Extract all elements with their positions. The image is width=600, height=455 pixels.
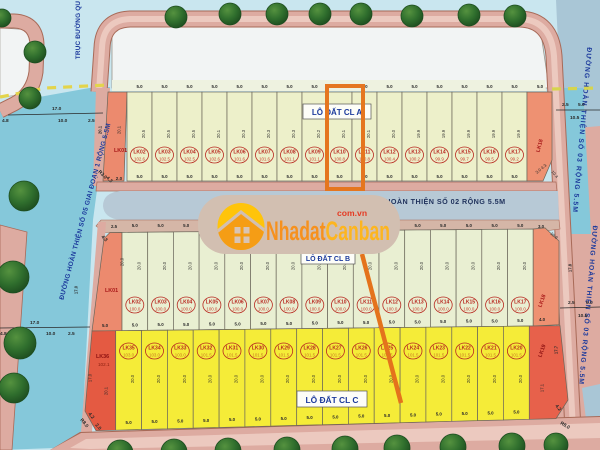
- svg-text:20.0: 20.0: [368, 261, 373, 270]
- svg-text:102.6: 102.6: [209, 157, 221, 162]
- svg-text:5.0: 5.0: [337, 320, 344, 325]
- svg-text:5.0: 5.0: [136, 84, 143, 89]
- svg-text:20.5: 20.5: [191, 129, 196, 138]
- svg-text:5.0: 5.0: [517, 223, 524, 228]
- svg-text:NhadatCanban: NhadatCanban: [266, 216, 390, 246]
- svg-text:5.0: 5.0: [436, 174, 443, 179]
- svg-text:20.0: 20.0: [440, 374, 445, 383]
- svg-text:100.0: 100.0: [335, 307, 347, 312]
- svg-text:100.0: 100.0: [309, 307, 321, 312]
- svg-text:LK12: LK12: [386, 300, 398, 306]
- svg-text:LK16: LK16: [488, 300, 500, 306]
- svg-text:5.0: 5.0: [511, 84, 518, 89]
- svg-text:20.0: 20.0: [208, 374, 213, 383]
- svg-text:LK21: LK21: [484, 346, 496, 352]
- svg-text:103.0: 103.0: [149, 353, 161, 358]
- svg-text:5.0: 5.0: [132, 223, 139, 228]
- svg-text:5.0: 5.0: [161, 174, 168, 179]
- svg-text:LK05: LK05: [206, 300, 218, 306]
- svg-text:20.0: 20.0: [291, 261, 296, 270]
- svg-text:17.0: 17.0: [52, 106, 62, 112]
- svg-text:10.0: 10.0: [46, 331, 56, 337]
- svg-text:5.0: 5.0: [411, 174, 418, 179]
- svg-text:101.1: 101.1: [284, 157, 296, 162]
- svg-text:10.5: 10.5: [578, 313, 588, 319]
- svg-text:103.0: 103.0: [175, 353, 187, 358]
- svg-text:LK30: LK30: [252, 346, 264, 352]
- svg-text:LK17: LK17: [508, 150, 520, 156]
- svg-text:5.0: 5.0: [136, 174, 143, 179]
- svg-text:5.0: 5.0: [389, 320, 396, 325]
- svg-text:101.5: 101.5: [201, 353, 213, 358]
- svg-text:LK14: LK14: [437, 300, 449, 306]
- svg-text:101.1: 101.1: [309, 157, 321, 162]
- svg-text:20.0: 20.0: [136, 261, 141, 270]
- svg-text:17.8: 17.8: [568, 263, 573, 272]
- svg-text:LK09: LK09: [309, 300, 321, 306]
- svg-text:LK24: LK24: [407, 346, 419, 352]
- svg-text:5.0: 5.0: [578, 102, 585, 108]
- svg-text:5.0: 5.0: [492, 223, 499, 228]
- svg-text:20.1: 20.1: [117, 125, 122, 134]
- svg-text:101.6: 101.6: [234, 157, 246, 162]
- svg-text:5.0: 5.0: [312, 321, 319, 326]
- svg-text:20.0: 20.0: [337, 374, 342, 383]
- svg-text:5.0: 5.0: [203, 418, 210, 423]
- svg-text:100.0: 100.0: [206, 307, 218, 312]
- svg-text:20.0: 20.0: [259, 374, 264, 383]
- svg-text:20.0: 20.0: [393, 261, 398, 270]
- svg-text:LK20: LK20: [510, 346, 522, 352]
- svg-text:100.0: 100.0: [412, 307, 424, 312]
- svg-text:5.0: 5.0: [102, 323, 109, 328]
- svg-text:100.4: 100.4: [384, 157, 396, 162]
- svg-text:LK31: LK31: [226, 346, 238, 352]
- svg-text:LK28: LK28: [303, 346, 315, 352]
- svg-text:20.3: 20.3: [291, 129, 296, 138]
- svg-text:20.0: 20.0: [265, 261, 270, 270]
- svg-text:20.5: 20.5: [166, 129, 171, 138]
- svg-text:10.5: 10.5: [570, 115, 580, 121]
- svg-text:LK17: LK17: [514, 300, 526, 306]
- svg-text:5.0: 5.0: [517, 318, 524, 323]
- svg-text:20.5: 20.5: [141, 129, 146, 138]
- svg-text:100.0: 100.0: [361, 307, 373, 312]
- svg-text:5.0: 5.0: [186, 174, 193, 179]
- svg-text:20.0: 20.0: [466, 374, 471, 383]
- svg-text:5.0: 5.0: [537, 84, 544, 89]
- svg-text:10.0: 10.0: [58, 118, 68, 124]
- svg-text:LK15: LK15: [458, 150, 470, 156]
- svg-text:5.0: 5.0: [586, 300, 593, 306]
- svg-text:103.0: 103.0: [123, 353, 135, 358]
- svg-text:20.0: 20.0: [311, 374, 316, 383]
- svg-text:5.0: 5.0: [492, 318, 499, 323]
- svg-text:5.0: 5.0: [363, 320, 370, 325]
- svg-text:LK27: LK27: [329, 346, 341, 352]
- svg-text:101.5: 101.5: [459, 353, 471, 358]
- svg-text:5.0: 5.0: [158, 322, 165, 327]
- svg-text:5.0: 5.0: [466, 223, 473, 228]
- svg-text:5.0: 5.0: [126, 420, 133, 425]
- svg-text:5.0: 5.0: [209, 322, 216, 327]
- svg-text:20.0: 20.0: [391, 129, 396, 138]
- svg-text:5.0: 5.0: [132, 323, 139, 328]
- svg-text:20.0: 20.0: [162, 261, 167, 270]
- svg-text:5.0: 5.0: [487, 410, 494, 415]
- svg-text:5.0: 5.0: [486, 174, 493, 179]
- svg-text:LK08: LK08: [283, 150, 295, 156]
- svg-text:LK22: LK22: [459, 346, 471, 352]
- svg-text:17.0: 17.0: [30, 320, 40, 326]
- svg-text:20.0: 20.0: [518, 374, 523, 383]
- svg-text:LK07: LK07: [258, 150, 270, 156]
- svg-text:LK04: LK04: [183, 150, 195, 156]
- svg-text:20.1: 20.1: [341, 129, 346, 138]
- svg-text:5.0: 5.0: [281, 416, 288, 421]
- svg-text:5.0: 5.0: [158, 223, 165, 228]
- svg-text:20.0: 20.0: [522, 261, 527, 270]
- svg-text:101.5: 101.5: [356, 353, 368, 358]
- svg-text:100.2: 100.2: [409, 157, 421, 162]
- svg-text:5.0: 5.0: [260, 321, 267, 326]
- svg-text:LK06: LK06: [231, 300, 243, 306]
- svg-text:5.0: 5.0: [511, 174, 518, 179]
- svg-text:5.0: 5.0: [461, 174, 468, 179]
- svg-text:5.0: 5.0: [183, 223, 190, 228]
- svg-text:5.0: 5.0: [462, 411, 469, 416]
- svg-text:5.0: 5.0: [440, 223, 447, 228]
- svg-text:5.0: 5.0: [466, 319, 473, 324]
- svg-text:LK10: LK10: [333, 150, 345, 156]
- svg-text:20.1: 20.1: [366, 129, 371, 138]
- svg-text:19.9: 19.9: [416, 129, 421, 138]
- svg-text:17.0: 17.0: [88, 373, 93, 382]
- svg-text:5.0: 5.0: [236, 84, 243, 89]
- svg-text:20.2: 20.2: [316, 129, 321, 138]
- svg-text:4.0: 4.0: [539, 317, 546, 322]
- svg-text:5.0: 5.0: [386, 174, 393, 179]
- svg-text:5.0: 5.0: [513, 410, 520, 415]
- svg-text:LK29: LK29: [278, 346, 290, 352]
- svg-text:20.0: 20.0: [445, 261, 450, 270]
- svg-text:20.0: 20.0: [239, 261, 244, 270]
- svg-text:5.0: 5.0: [151, 419, 158, 424]
- svg-text:20.0: 20.0: [492, 374, 497, 383]
- svg-text:2.0: 2.0: [116, 176, 123, 181]
- svg-text:20.0: 20.0: [234, 374, 239, 383]
- svg-text:LK07: LK07: [257, 300, 269, 306]
- svg-text:LK12: LK12: [383, 150, 395, 156]
- svg-text:LK34: LK34: [148, 346, 160, 352]
- svg-text:5.0: 5.0: [461, 84, 468, 89]
- svg-text:100.0: 100.0: [463, 307, 475, 312]
- svg-text:LK14: LK14: [433, 150, 445, 156]
- svg-text:LK23: LK23: [433, 346, 445, 352]
- svg-text:101.5: 101.5: [511, 353, 523, 358]
- svg-text:5.0: 5.0: [286, 84, 293, 89]
- svg-text:5.0: 5.0: [255, 416, 262, 421]
- svg-text:5.0: 5.0: [415, 319, 422, 324]
- svg-text:5.0: 5.0: [183, 322, 190, 327]
- svg-text:LK01: LK01: [105, 288, 118, 294]
- svg-text:101.6: 101.6: [259, 157, 271, 162]
- svg-text:LK13: LK13: [408, 150, 420, 156]
- svg-text:LK06: LK06: [233, 150, 245, 156]
- svg-text:2.5: 2.5: [111, 224, 118, 229]
- svg-text:100.0: 100.0: [232, 307, 244, 312]
- svg-text:100.0: 100.0: [181, 307, 193, 312]
- svg-text:101.5: 101.5: [485, 353, 497, 358]
- svg-text:20.0: 20.0: [363, 374, 368, 383]
- svg-text:2.5: 2.5: [68, 331, 75, 337]
- svg-text:LK10: LK10: [334, 300, 346, 306]
- svg-text:100.0: 100.0: [515, 307, 527, 312]
- svg-text:20.0: 20.0: [120, 257, 125, 266]
- svg-text:100.8: 100.8: [334, 157, 346, 162]
- svg-text:LK02: LK02: [133, 150, 145, 156]
- svg-text:LK05: LK05: [208, 150, 220, 156]
- svg-text:LK15: LK15: [463, 300, 475, 306]
- svg-text:5.0: 5.0: [436, 84, 443, 89]
- svg-text:5.0: 5.0: [440, 319, 447, 324]
- svg-text:102.5: 102.5: [184, 157, 196, 162]
- svg-text:5.0: 5.0: [386, 84, 393, 89]
- svg-text:101.5: 101.5: [227, 353, 239, 358]
- svg-text:TRỤC ĐƯỜNG QU: TRỤC ĐƯỜNG QU: [73, 1, 82, 60]
- svg-text:101.5: 101.5: [433, 353, 445, 358]
- svg-text:LÔ ĐẤT CL C: LÔ ĐẤT CL C: [306, 394, 359, 405]
- svg-text:LK08: LK08: [283, 300, 295, 306]
- svg-text:LK33: LK33: [174, 346, 186, 352]
- svg-text:102.6: 102.6: [134, 157, 146, 162]
- svg-text:5.0: 5.0: [410, 412, 417, 417]
- svg-text:LK35: LK35: [122, 346, 134, 352]
- svg-text:LÔ ĐẤT CL A: LÔ ĐẤT CL A: [312, 107, 362, 117]
- svg-text:2.5: 2.5: [88, 118, 95, 124]
- svg-text:5.0: 5.0: [261, 84, 268, 89]
- svg-text:LK16: LK16: [483, 150, 495, 156]
- svg-text:5.0: 5.0: [236, 174, 243, 179]
- svg-text:20.0: 20.0: [156, 374, 161, 383]
- svg-text:5.0: 5.0: [235, 321, 242, 326]
- svg-text:100.0: 100.0: [129, 307, 141, 312]
- svg-text:20.0: 20.0: [419, 261, 424, 270]
- svg-text:LK11: LK11: [360, 300, 372, 306]
- svg-text:5.0: 5.0: [411, 84, 418, 89]
- svg-text:LK01: LK01: [114, 148, 127, 154]
- svg-text:5.0: 5.0: [186, 84, 193, 89]
- svg-text:99.5: 99.5: [485, 157, 494, 162]
- svg-text:5.0: 5.0: [161, 84, 168, 89]
- svg-text:5.0: 5.0: [211, 84, 218, 89]
- svg-text:101.5: 101.5: [330, 353, 342, 358]
- svg-text:4.8: 4.8: [2, 118, 9, 124]
- svg-text:101.5: 101.5: [304, 353, 316, 358]
- svg-text:19.9: 19.9: [441, 129, 446, 138]
- svg-text:20.1: 20.1: [216, 129, 221, 138]
- svg-text:101.5: 101.5: [278, 353, 290, 358]
- svg-text:2.5: 2.5: [568, 300, 575, 306]
- svg-text:17.0: 17.0: [74, 285, 79, 294]
- svg-text:20.0: 20.0: [188, 261, 193, 270]
- svg-text:19.9: 19.9: [491, 129, 496, 138]
- svg-text:20.1: 20.1: [98, 125, 103, 134]
- svg-text:5.0: 5.0: [286, 174, 293, 179]
- svg-text:5.0: 5.0: [211, 174, 218, 179]
- svg-text:20.0: 20.0: [415, 374, 420, 383]
- svg-text:19.9: 19.9: [516, 129, 521, 138]
- svg-text:5.0: 5.0: [311, 84, 318, 89]
- svg-text:5.0: 5.0: [229, 417, 236, 422]
- svg-text:100.0: 100.0: [284, 307, 296, 312]
- svg-text:100.0: 100.0: [386, 307, 398, 312]
- svg-text:100.0: 100.0: [155, 307, 167, 312]
- svg-text:17.7: 17.7: [554, 345, 559, 354]
- svg-text:5.0: 5.0: [358, 414, 365, 419]
- svg-text:17.1: 17.1: [540, 383, 545, 392]
- svg-text:5.0: 5.0: [486, 84, 493, 89]
- svg-text:5.0: 5.0: [332, 414, 339, 419]
- svg-text:LK02: LK02: [129, 300, 141, 306]
- svg-text:20.3: 20.3: [241, 129, 246, 138]
- svg-text:5.0: 5.0: [336, 174, 343, 179]
- svg-text:20.0: 20.0: [213, 261, 218, 270]
- svg-text:102.5: 102.5: [159, 157, 171, 162]
- svg-text:5.0: 5.0: [311, 174, 318, 179]
- svg-text:5.0: 5.0: [286, 321, 293, 326]
- svg-text:20.0: 20.0: [182, 374, 187, 383]
- svg-text:99.7: 99.7: [460, 157, 469, 162]
- svg-text:LK03: LK03: [158, 150, 170, 156]
- svg-text:LK09: LK09: [308, 150, 320, 156]
- svg-text:5.0: 5.0: [384, 413, 391, 418]
- svg-text:5.0: 5.0: [177, 419, 184, 424]
- svg-text:100.0: 100.0: [438, 307, 450, 312]
- svg-text:20.0: 20.0: [130, 374, 135, 383]
- svg-text:LK13: LK13: [411, 300, 423, 306]
- svg-text:LK26: LK26: [355, 346, 367, 352]
- svg-text:LK03: LK03: [154, 300, 166, 306]
- svg-text:20.0: 20.0: [285, 374, 290, 383]
- svg-text:100.0: 100.0: [489, 307, 501, 312]
- svg-text:19.9: 19.9: [466, 129, 471, 138]
- svg-text:LK36: LK36: [96, 354, 109, 360]
- svg-text:20.3: 20.3: [266, 129, 271, 138]
- svg-text:5.0: 5.0: [307, 415, 314, 420]
- svg-text:2.5: 2.5: [562, 102, 569, 108]
- svg-text:102.1: 102.1: [98, 362, 110, 367]
- svg-text:LK04: LK04: [180, 300, 192, 306]
- svg-text:20.1: 20.1: [104, 386, 109, 395]
- svg-text:100.0: 100.0: [258, 307, 270, 312]
- svg-text:20.0: 20.0: [470, 261, 475, 270]
- svg-text:101.5: 101.5: [252, 353, 264, 358]
- svg-text:5.0: 5.0: [415, 223, 422, 228]
- svg-text:LK32: LK32: [200, 346, 212, 352]
- svg-text:99.9: 99.9: [435, 157, 444, 162]
- svg-text:20.0: 20.0: [496, 261, 501, 270]
- svg-text:com.vn: com.vn: [337, 208, 367, 218]
- svg-text:5.0: 5.0: [436, 412, 443, 417]
- svg-text:5.0: 5.0: [261, 174, 268, 179]
- svg-text:99.2: 99.2: [510, 157, 519, 162]
- svg-text:3.0: 3.0: [538, 224, 545, 229]
- svg-text:101.5: 101.5: [408, 353, 420, 358]
